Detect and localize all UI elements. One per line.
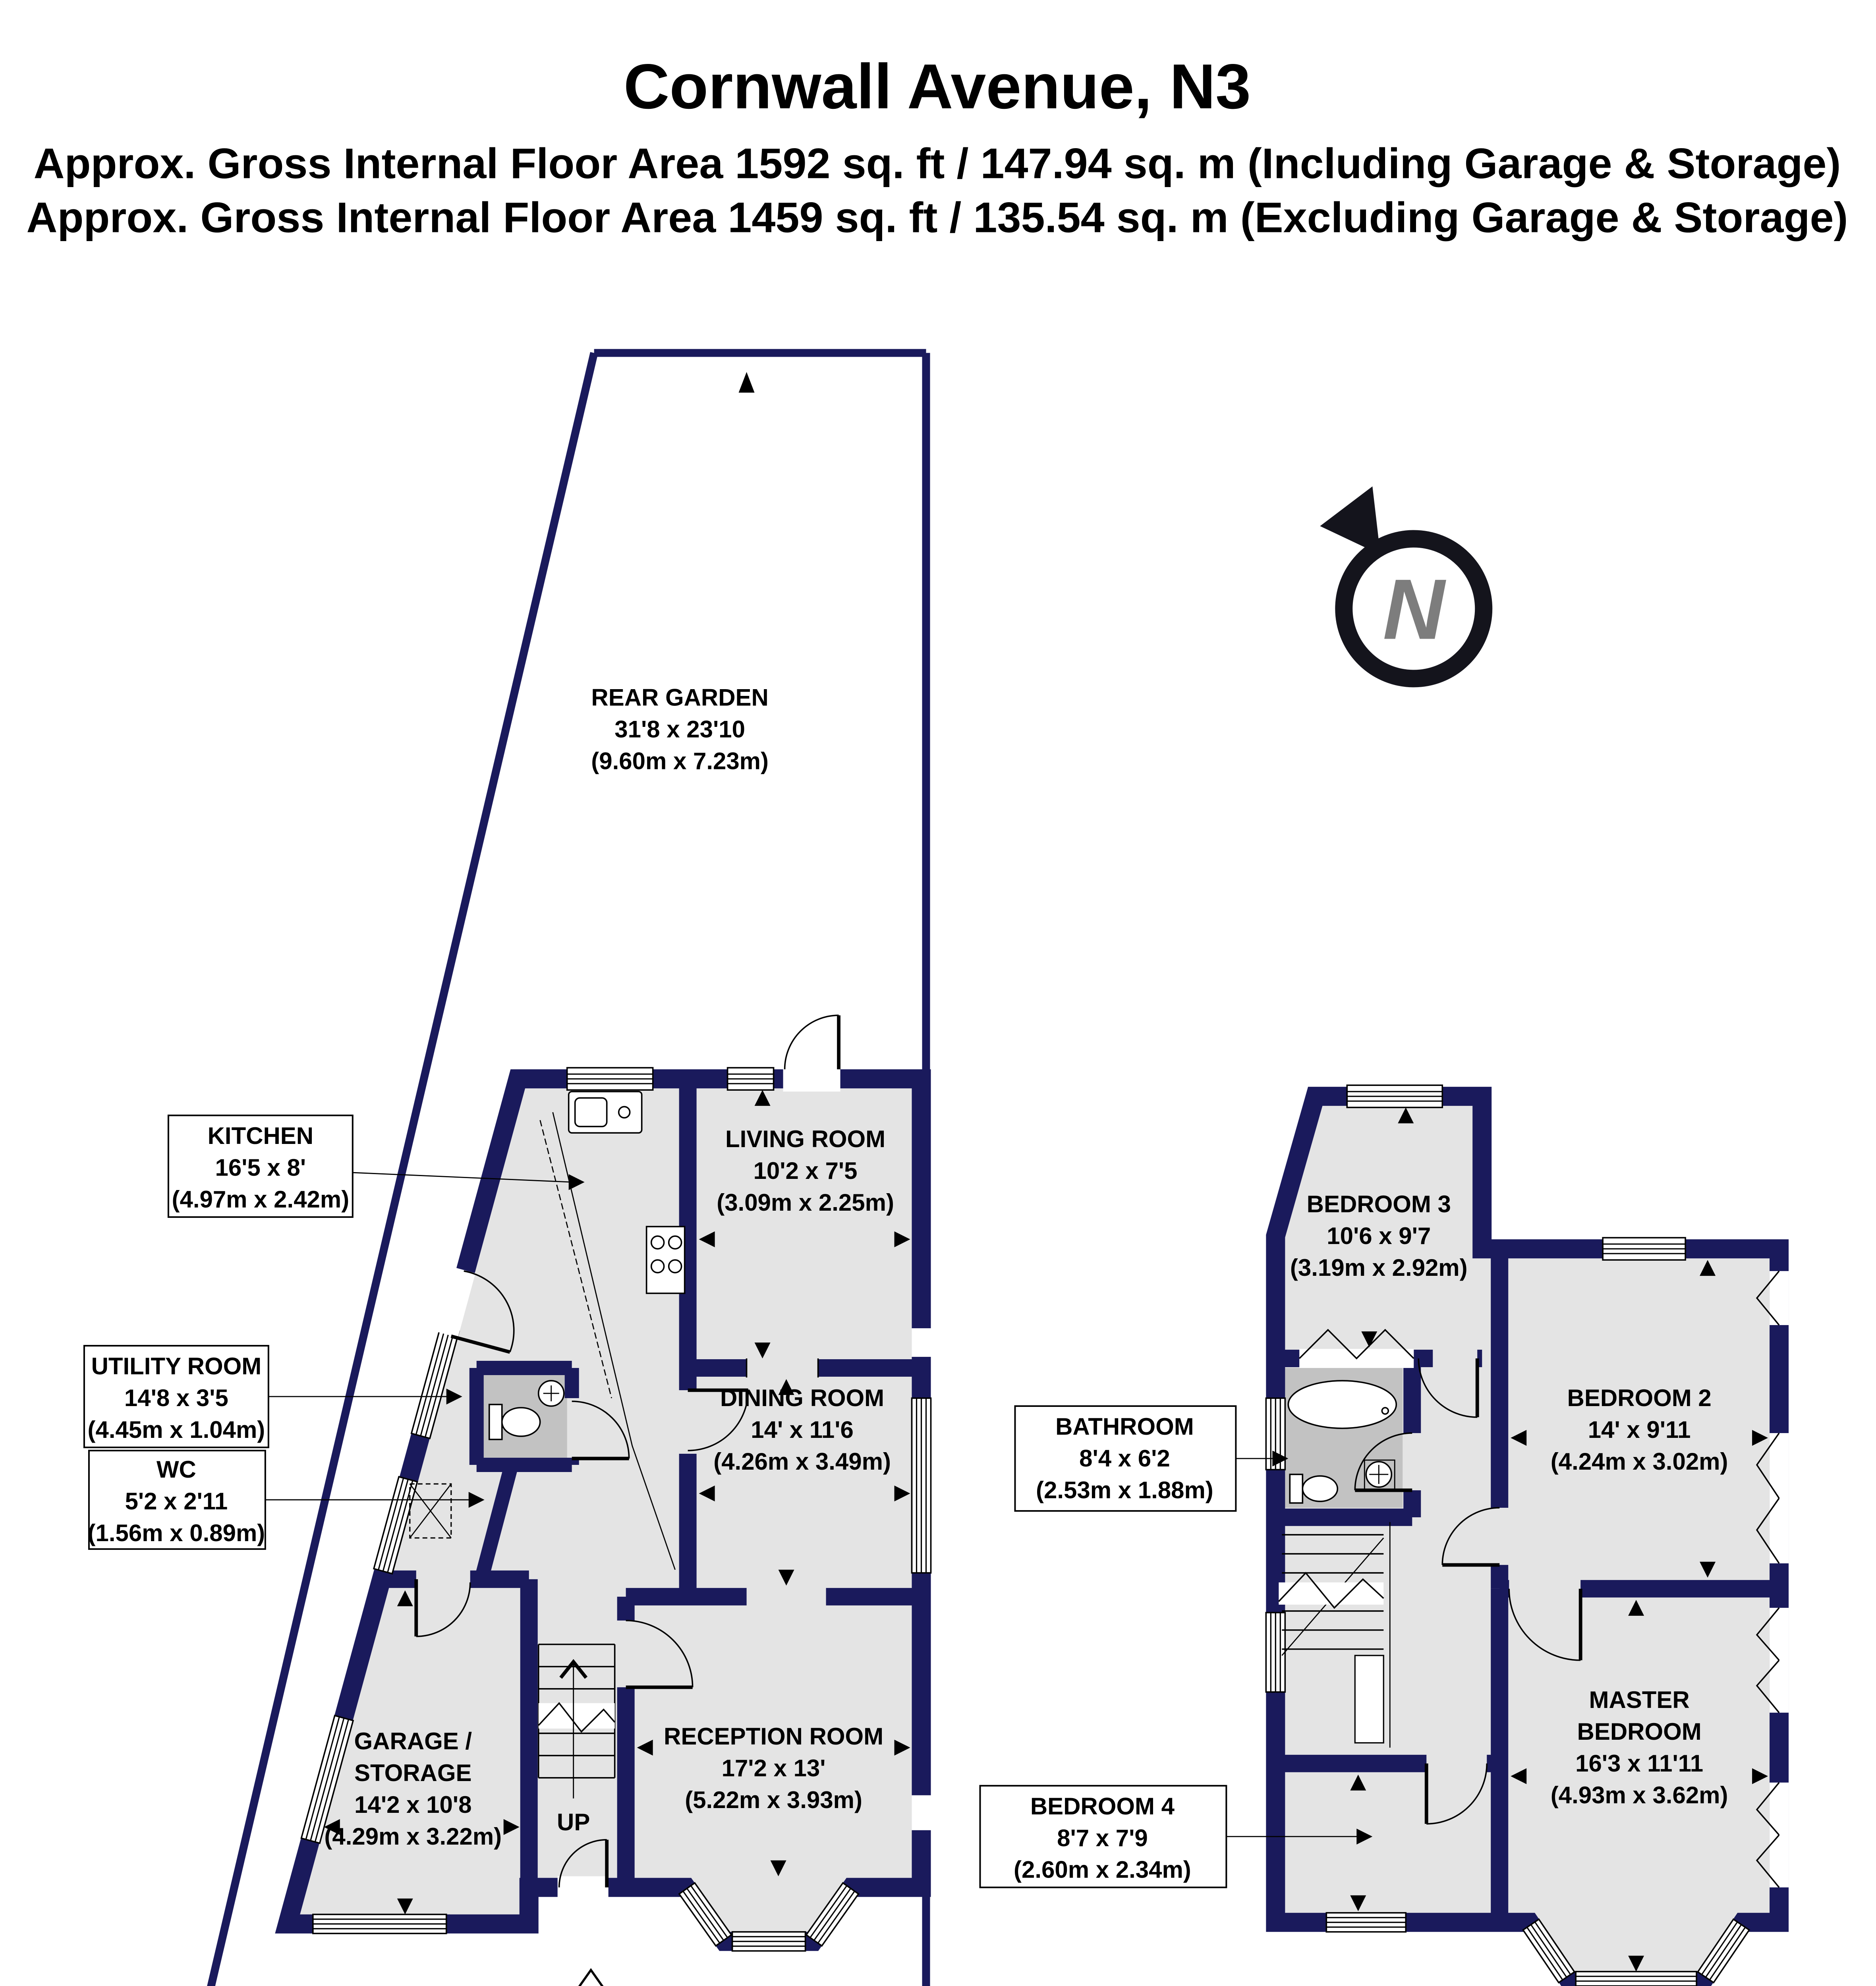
svg-text:WC: WC (156, 1456, 196, 1483)
svg-text:(4.97m x 2.42m): (4.97m x 2.42m) (172, 1186, 350, 1213)
bedroom4-window (1326, 1913, 1406, 1932)
svg-text:(9.60m x 7.23m): (9.60m x 7.23m) (591, 748, 769, 774)
svg-text:UTILITY ROOM: UTILITY ROOM (91, 1353, 262, 1379)
garage-window (313, 1915, 446, 1934)
kitchen-sink (569, 1092, 642, 1133)
svg-text:BEDROOM 4: BEDROOM 4 (1030, 1793, 1175, 1820)
svg-text:(4.29m x 3.22m): (4.29m x 3.22m) (324, 1823, 502, 1850)
wc-sink (539, 1381, 564, 1406)
dining-room-window (912, 1398, 931, 1573)
bedroom2-window (1603, 1238, 1685, 1260)
svg-text:GARAGE /: GARAGE / (354, 1728, 472, 1754)
svg-text:BEDROOM 2: BEDROOM 2 (1567, 1385, 1712, 1411)
svg-text:(3.19m x 2.92m): (3.19m x 2.92m) (1290, 1254, 1468, 1281)
page-subtitle-including: Approx. Gross Internal Floor Area 1592 s… (34, 139, 1841, 187)
north-compass-icon: N (1320, 486, 1484, 678)
right-wall-notch-living (912, 1328, 931, 1357)
svg-text:BEDROOM: BEDROOM (1577, 1718, 1702, 1745)
svg-text:14' x 9'11: 14' x 9'11 (1588, 1416, 1691, 1443)
svg-text:BEDROOM 3: BEDROOM 3 (1307, 1191, 1451, 1217)
svg-text:(4.93m x 3.62m): (4.93m x 3.62m) (1551, 1782, 1728, 1808)
svg-text:BATHROOM: BATHROOM (1055, 1413, 1194, 1440)
svg-text:MASTER: MASTER (1589, 1687, 1690, 1713)
page-title: Cornwall Avenue, N3 (624, 51, 1251, 122)
bathroom-label-box: BATHROOM 8'4 x 6'2 (2.53m x 1.88m) (1015, 1406, 1288, 1511)
svg-text:STORAGE: STORAGE (354, 1760, 471, 1786)
svg-text:RECEPTION ROOM: RECEPTION ROOM (664, 1723, 883, 1750)
svg-text:14' x 11'6: 14' x 11'6 (751, 1416, 854, 1443)
svg-text:10'2 x 7'5: 10'2 x 7'5 (753, 1157, 858, 1184)
up-label: UP (557, 1809, 590, 1835)
entrance-in-arrow (572, 1970, 610, 1986)
svg-text:17'2 x 13': 17'2 x 13' (722, 1755, 826, 1781)
svg-text:16'5 x 8': 16'5 x 8' (215, 1154, 306, 1181)
svg-text:(1.56m x 0.89m): (1.56m x 0.89m) (88, 1520, 265, 1546)
svg-text:8'7 x 7'9: 8'7 x 7'9 (1057, 1825, 1148, 1851)
first-floor-house (1266, 1085, 1789, 1986)
page-subtitle-excluding: Approx. Gross Internal Floor Area 1459 s… (27, 193, 1848, 241)
bedroom3-window (1347, 1085, 1442, 1107)
svg-text:31'8 x 23'10: 31'8 x 23'10 (614, 716, 745, 742)
svg-text:KITCHEN: KITCHEN (208, 1122, 314, 1149)
svg-text:5'2 x 2'11: 5'2 x 2'11 (125, 1488, 228, 1515)
svg-text:LIVING ROOM: LIVING ROOM (725, 1126, 885, 1152)
stove (647, 1227, 685, 1293)
rear-door (783, 1015, 840, 1092)
rear-garden-label: REAR GARDEN 31'8 x 23'10 (9.60m x 7.23m) (591, 684, 769, 774)
svg-text:(4.45m x 1.04m): (4.45m x 1.04m) (88, 1416, 265, 1443)
svg-text:(2.53m x 1.88m): (2.53m x 1.88m) (1036, 1477, 1213, 1503)
svg-text:10'6 x 9'7: 10'6 x 9'7 (1327, 1223, 1431, 1249)
rear-garden-arrow (739, 372, 755, 393)
floorplan-canvas: Cornwall Avenue, N3 Approx. Gross Intern… (0, 0, 1876, 1986)
right-wall-notch-reception (912, 1795, 931, 1830)
compass-north-letter: N (1383, 561, 1446, 657)
svg-text:REAR GARDEN: REAR GARDEN (591, 684, 768, 711)
wc-toilet (489, 1404, 540, 1439)
svg-text:(3.09m x 2.25m): (3.09m x 2.25m) (717, 1189, 894, 1216)
bathtub (1288, 1381, 1396, 1428)
utility-room-label-box: UTILITY ROOM 14'8 x 3'5 (4.45m x 1.04m) (84, 1346, 462, 1447)
svg-text:(5.22m x 3.93m): (5.22m x 3.93m) (685, 1787, 862, 1813)
svg-text:(4.26m x 3.49m): (4.26m x 3.49m) (713, 1448, 891, 1475)
svg-text:(4.24m x 3.02m): (4.24m x 3.02m) (1551, 1448, 1728, 1475)
svg-text:(2.60m x 2.34m): (2.60m x 2.34m) (1014, 1857, 1191, 1883)
landing-window (1266, 1613, 1285, 1692)
bathroom-toilet (1290, 1474, 1337, 1503)
svg-text:14'8 x 3'5: 14'8 x 3'5 (124, 1385, 228, 1411)
kitchen-window (567, 1068, 653, 1090)
svg-text:DINING ROOM: DINING ROOM (720, 1385, 884, 1411)
svg-text:8'4 x 6'2: 8'4 x 6'2 (1079, 1445, 1170, 1472)
svg-text:14'2 x 10'8: 14'2 x 10'8 (354, 1791, 471, 1818)
svg-text:16'3 x 11'11: 16'3 x 11'11 (1575, 1750, 1703, 1777)
living-room-window (728, 1068, 774, 1090)
